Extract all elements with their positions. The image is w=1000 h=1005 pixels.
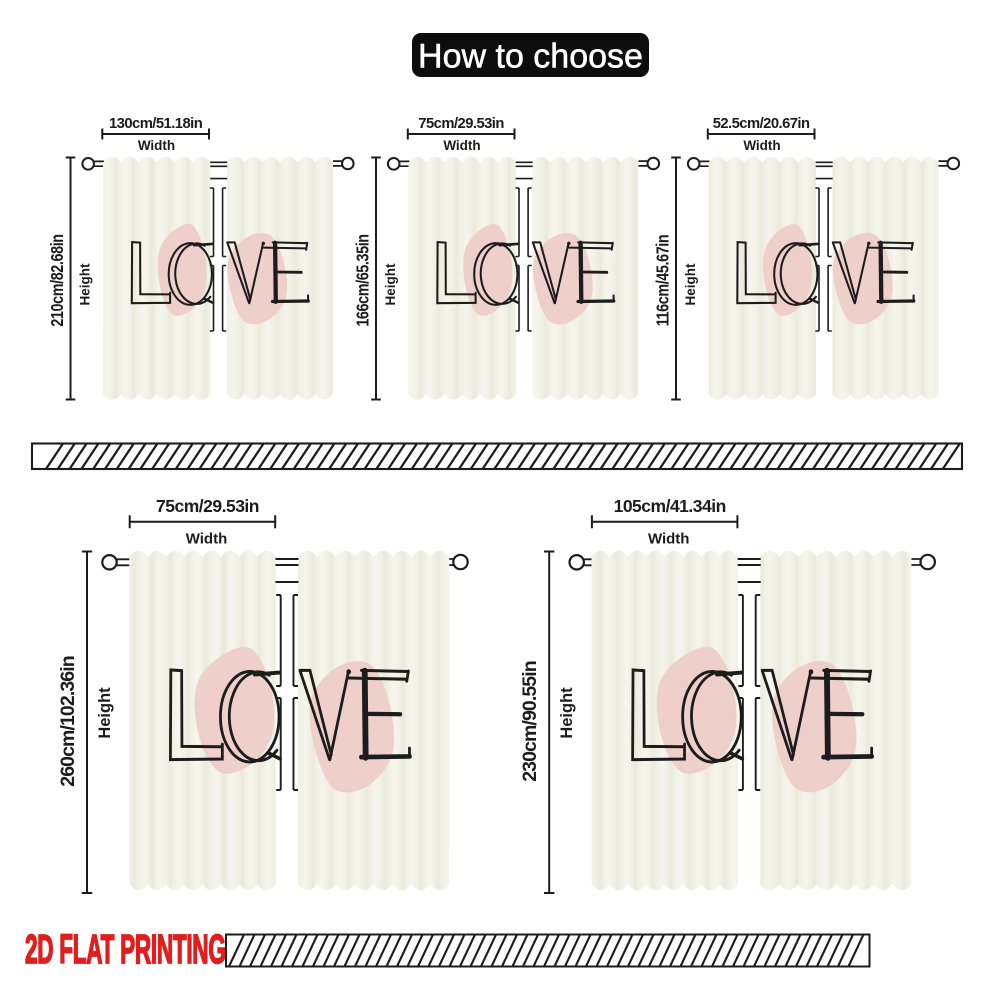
svg-text:Height: Height [383,263,398,306]
svg-text:230cm/90.55in: 230cm/90.55in [519,661,541,782]
svg-text:130cm/51.18in: 130cm/51.18in [109,116,203,132]
svg-text:210cm/82.68in: 210cm/82.68in [48,234,68,326]
svg-text:Width: Width [186,531,228,548]
svg-text:116cm/45.67in: 116cm/45.67in [653,235,673,327]
svg-text:Height: Height [683,263,698,306]
svg-text:2D FLAT PRINTING: 2D FLAT PRINTING [25,927,226,973]
svg-text:Height: Height [96,687,114,739]
svg-text:166cm/65.35in: 166cm/65.35in [353,234,373,326]
svg-text:260cm/102.36in: 260cm/102.36in [57,656,79,787]
svg-text:Height: Height [78,263,93,306]
svg-text:Width: Width [443,138,480,153]
svg-text:How to choose: How to choose [418,38,643,76]
svg-text:Width: Width [648,531,690,548]
svg-text:Width: Width [138,138,175,153]
svg-text:75cm/29.53in: 75cm/29.53in [156,496,259,516]
svg-text:105cm/41.34in: 105cm/41.34in [614,496,726,516]
svg-text:Height: Height [558,687,576,739]
svg-text:Width: Width [743,138,780,153]
svg-text:52.5cm/20.67in: 52.5cm/20.67in [713,116,810,132]
svg-text:75cm/29.53in: 75cm/29.53in [418,116,504,132]
